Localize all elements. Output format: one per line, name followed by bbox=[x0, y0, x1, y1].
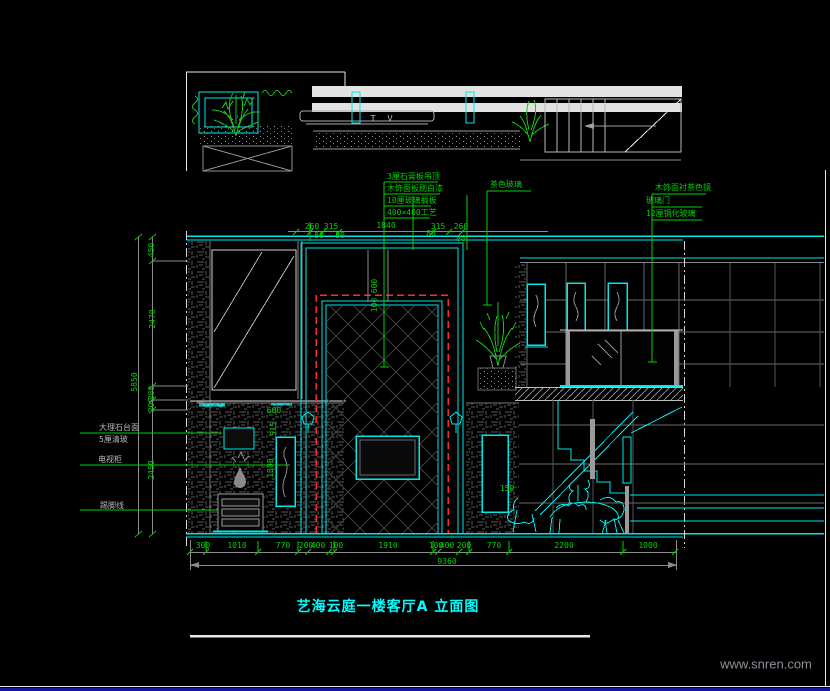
leader-note-ceiling-2: 木饰面板刷白漆 bbox=[387, 185, 443, 193]
plan-tv-label: T V bbox=[370, 116, 395, 125]
leader-note-right-3: 12厘钢化玻璃 bbox=[646, 210, 696, 218]
dim-bottom-3: 770 bbox=[276, 542, 290, 550]
dim-left-1: 450 bbox=[148, 243, 156, 257]
dim-bottom-overall: 9360 bbox=[437, 558, 456, 566]
watermark: www.snren.com bbox=[720, 658, 812, 671]
leader-note-ceiling-1: 3厘石膏板吊顶 bbox=[387, 173, 440, 181]
drawing-title: 艺海云庭一楼客厅A 立面图 bbox=[297, 600, 480, 614]
dim-bottom-2: 1010 bbox=[227, 542, 246, 550]
dim-top-3: 80 bbox=[314, 232, 324, 240]
leader-note-ceiling-4: 400×400工艺 bbox=[387, 209, 437, 217]
staircase bbox=[535, 400, 824, 533]
material-label-4: 踢脚线 bbox=[100, 502, 124, 510]
dim-top-8: 260 bbox=[454, 223, 468, 231]
cad-linework bbox=[0, 0, 830, 691]
dim-bottom-9: 400 bbox=[440, 542, 454, 550]
dim-left-2: 2470 bbox=[149, 309, 157, 328]
plan-view bbox=[186, 72, 682, 171]
dim-left-5: 2450 bbox=[148, 460, 156, 479]
dim-niche-600: 600 bbox=[267, 407, 281, 415]
dim-top-2: 315 bbox=[324, 223, 338, 231]
leader-note-right-1: 木饰面衬茶色镜 bbox=[655, 184, 711, 192]
leader-note-mid: 茶色玻璃 bbox=[490, 181, 522, 189]
dim-bottom-12: 2200 bbox=[554, 542, 573, 550]
dim-top-1: 260 bbox=[305, 223, 319, 231]
dim-bottom-5: 400 bbox=[311, 542, 325, 550]
dim-top-6: 80 bbox=[426, 230, 436, 238]
elevation-view bbox=[186, 231, 824, 548]
material-label-1: 大理石台面 bbox=[99, 424, 139, 432]
dim-panel-600: 600 bbox=[371, 279, 379, 293]
dim-bottom-7: 1910 bbox=[378, 542, 397, 550]
material-label-2: 5厘清玻 bbox=[99, 436, 128, 444]
cad-drawing-canvas[interactable]: T V 3厘石膏板吊顶 木饰面板刷白漆 10厘玻璃搁板 400×400工艺 茶色… bbox=[0, 0, 830, 691]
dim-bottom-6: 100 bbox=[329, 542, 343, 550]
dim-panel-100: 100 bbox=[371, 298, 379, 312]
dim-niche-1300: 1300 bbox=[267, 458, 275, 477]
dim-top-7: 315 bbox=[431, 223, 445, 231]
dim-left-4: 200 bbox=[148, 398, 156, 412]
elevation-plant-icon bbox=[476, 302, 520, 368]
leader-note-ceiling-3: 10厘玻璃搁板 bbox=[387, 197, 437, 205]
dim-bottom-13: 1000 bbox=[638, 542, 657, 550]
dim-bottom-10: 200 bbox=[457, 542, 471, 550]
dim-niche-515: 515 bbox=[270, 422, 278, 436]
leader-note-right-2: 玻璃门 bbox=[646, 197, 670, 205]
material-label-3: 电视柜 bbox=[98, 456, 122, 464]
dim-bottom-11: 770 bbox=[487, 542, 501, 550]
dim-top-5: 1840 bbox=[376, 222, 395, 230]
dim-top-9: 80 bbox=[456, 235, 466, 243]
dim-left-overall: 5850 bbox=[131, 372, 139, 391]
dim-bottom-1: 300 bbox=[196, 542, 210, 550]
dim-step-150: 150 bbox=[500, 485, 514, 493]
dim-top-4: 80 bbox=[335, 232, 345, 240]
furniture-sketch bbox=[508, 480, 624, 534]
